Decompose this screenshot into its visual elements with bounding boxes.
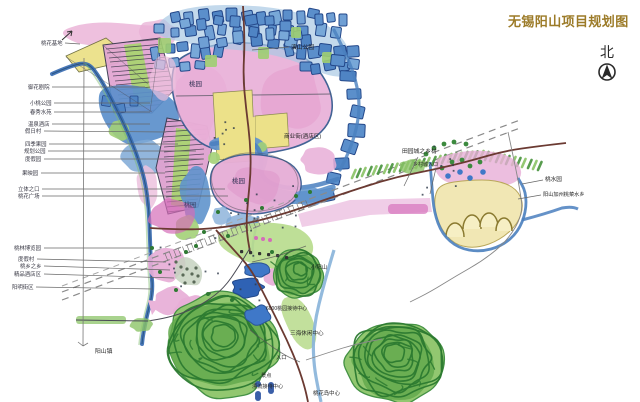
svg-text:阳明街区: 阳明街区 [12,283,34,291]
svg-text:无锡阳山项目规划图: 无锡阳山项目规划图 [507,14,629,29]
svg-text:阳山镇: 阳山镇 [95,347,113,355]
svg-text:桃园: 桃园 [232,176,245,185]
svg-text:御花剧院: 御花剧院 [28,83,50,91]
svg-text:桃乡之乡: 桃乡之乡 [20,262,42,270]
svg-text:6000桃园接待中心: 6000桃园接待中心 [266,305,307,312]
svg-text:入口: 入口 [276,354,286,361]
svg-text:漂流接待中心: 漂流接待中心 [252,382,283,390]
svg-text:小桃公园: 小桃公园 [30,99,52,107]
svg-text:春秀水苑: 春秀水苑 [30,108,52,116]
svg-text:假日村: 假日村 [25,127,42,135]
svg-text:立体之口: 立体之口 [18,185,40,193]
svg-text:桃水园: 桃水园 [545,175,562,183]
svg-text:桃花广场: 桃花广场 [18,192,40,200]
svg-text:规划公园: 规划公园 [24,147,46,155]
svg-text:桃花岛中心: 桃花岛中心 [313,389,341,397]
svg-text:桃园: 桃园 [184,201,196,209]
svg-text:四季果园: 四季果园 [25,140,47,148]
svg-text:桃林博览园: 桃林博览园 [14,244,41,252]
svg-text:小阳山: 小阳山 [311,263,327,271]
svg-text:演山公园: 演山公园 [291,43,314,51]
svg-text:田园城之乡村: 田园城之乡村 [402,147,437,155]
svg-text:温泉酒店: 温泉酒店 [28,120,50,128]
svg-text:阳山加州桃菜水乡: 阳山加州桃菜水乡 [543,190,585,198]
svg-text:景点: 景点 [261,372,271,379]
svg-text:度假村: 度假村 [18,255,35,263]
svg-text:果映园: 果映园 [22,169,38,177]
svg-text:三海休闲中心: 三海休闲中心 [290,329,324,337]
svg-text:商业街(酒店区): 商业街(酒店区) [284,132,321,140]
svg-text:桃花基地: 桃花基地 [41,39,63,47]
svg-text:乡村城入口: 乡村城入口 [413,161,438,168]
svg-text:精品酒店区: 精品酒店区 [14,270,42,278]
svg-text:北: 北 [600,44,614,60]
svg-text:度假园: 度假园 [25,155,41,163]
svg-text:桃园: 桃园 [189,79,202,88]
